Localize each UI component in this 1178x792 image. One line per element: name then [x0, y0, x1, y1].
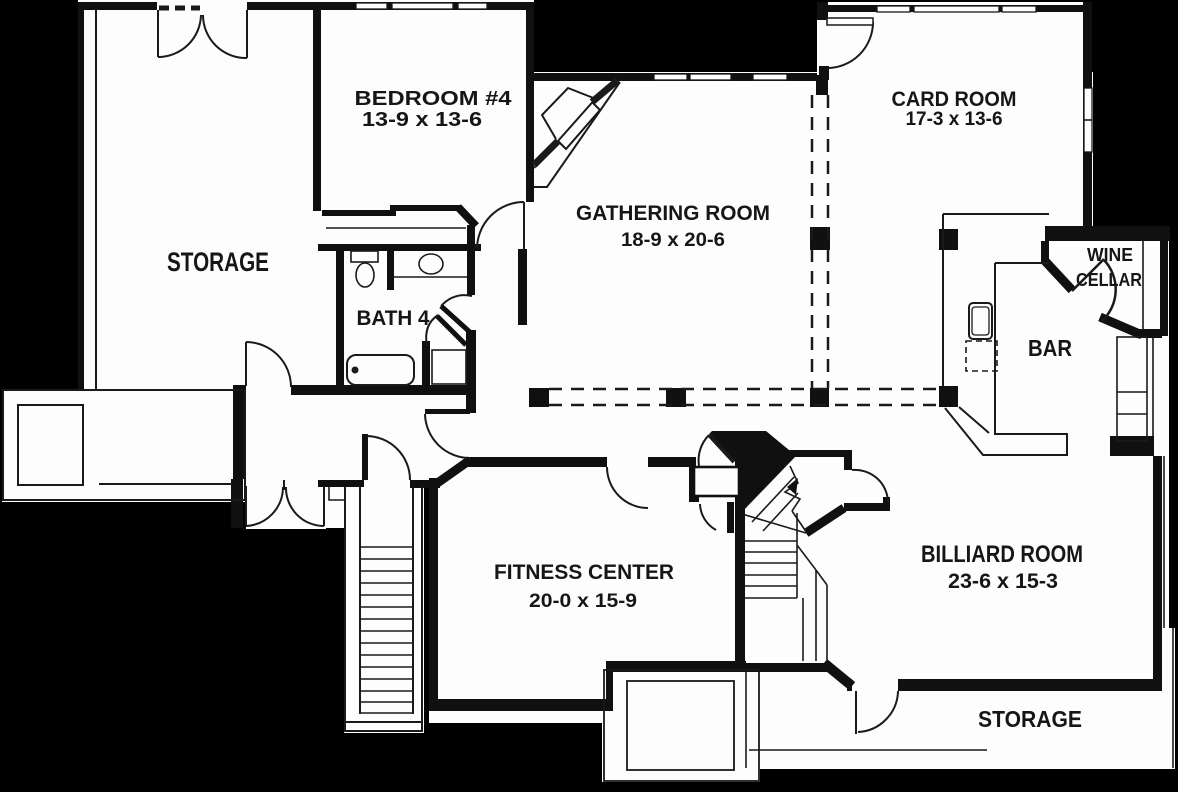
svg-text:FITNESS CENTER: FITNESS CENTER — [494, 561, 674, 584]
svg-text:BILLIARD ROOM: BILLIARD ROOM — [921, 541, 1083, 568]
svg-text:WINE: WINE — [1087, 245, 1133, 265]
svg-text:STORAGE: STORAGE — [167, 247, 269, 277]
svg-text:18-9 x 20-6: 18-9 x 20-6 — [621, 230, 725, 251]
svg-text:BEDROOM #4: BEDROOM #4 — [355, 88, 513, 110]
svg-text:BAR: BAR — [1028, 335, 1072, 361]
svg-text:13-9 x 13-6: 13-9 x 13-6 — [362, 109, 482, 131]
svg-text:CELLAR: CELLAR — [1076, 270, 1142, 290]
svg-text:STORAGE: STORAGE — [978, 706, 1082, 732]
svg-text:CARD ROOM: CARD ROOM — [892, 88, 1017, 111]
svg-text:23-6 x 15-3: 23-6 x 15-3 — [948, 570, 1058, 593]
svg-text:BATH 4: BATH 4 — [357, 307, 430, 330]
svg-text:20-0 x 15-9: 20-0 x 15-9 — [529, 591, 637, 612]
svg-text:GATHERING ROOM: GATHERING ROOM — [576, 202, 770, 225]
svg-text:17-3 x 13-6: 17-3 x 13-6 — [906, 109, 1003, 130]
